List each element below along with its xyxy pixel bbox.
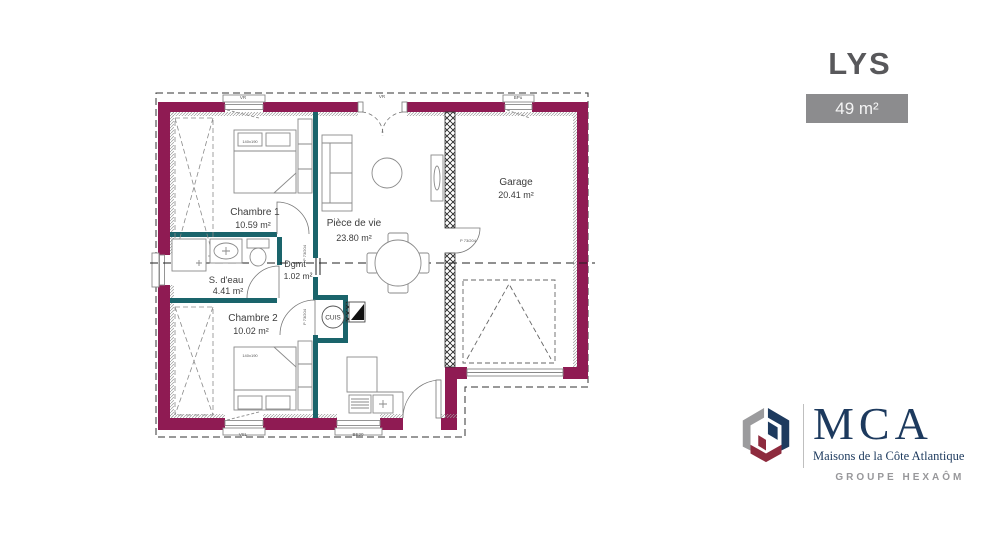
bed-tag-chambre2: 140x190 — [242, 353, 258, 358]
tv-unit-icon — [431, 155, 443, 201]
garage-separation-wall — [445, 112, 455, 367]
bed-tag-chambre1: 140x190 — [242, 139, 258, 144]
passage-marks — [316, 258, 320, 275]
floor-plan: CUIS Chambre 1 10.59 m² Pièce de vie 23.… — [150, 85, 600, 445]
wardrobe-chambre2-icon — [175, 307, 213, 415]
door-tag-chambre2: P 73/204 — [302, 308, 307, 325]
brand-tagline: Maisons de la Côte Atlantique — [813, 449, 964, 464]
water-heater-icon — [346, 302, 365, 322]
room-label-chambre1: Chambre 1 — [230, 207, 280, 218]
page-title: LYS — [795, 46, 925, 82]
room-area-sdeau: 4.41 m² — [213, 286, 244, 296]
door-tag-garage: P 73/204 — [460, 238, 477, 243]
window-tag-top-right: BPu — [514, 95, 523, 100]
entrance-door — [358, 102, 407, 136]
mca-cube-icon — [736, 404, 796, 470]
room-area-chambre2: 10.02 m² — [233, 326, 269, 336]
brand-initials: MCA — [813, 402, 964, 446]
window-tag-top-center: VR — [379, 94, 386, 99]
bathroom-fixtures — [172, 239, 269, 271]
room-label-piecedevie: Pièce de vie — [327, 218, 382, 229]
room-area-piecedevie: 23.80 m² — [336, 233, 372, 243]
dining-table-icon — [367, 233, 429, 293]
kitchen-icons — [347, 357, 403, 418]
room-label-chambre2: Chambre 2 — [228, 313, 278, 324]
kitchen-circle: CUIS — [322, 306, 344, 328]
brand-block: MCA Maisons de la Côte Atlantique GROUPE… — [736, 402, 992, 483]
sofa-icon — [322, 135, 352, 211]
page: LYS 49 m² — [0, 0, 1000, 554]
coffee-table-icon — [372, 158, 402, 188]
room-area-chambre1: 10.59 m² — [235, 220, 271, 230]
door-tag-bath: P 73/204 — [302, 244, 307, 261]
garage-door-symbol — [463, 280, 563, 376]
room-label-sdeau: S. d'eau — [209, 275, 244, 286]
brand-divider — [803, 404, 804, 468]
brand-group: GROUPE HEXAÔM — [813, 472, 964, 483]
area-badge: 49 m² — [806, 94, 908, 123]
window-tag-bottom-center: BE20 — [352, 432, 364, 437]
kitchen-circle-label: CUIS — [325, 315, 341, 322]
bed-chambre1-icon — [234, 119, 312, 193]
room-label-garage: Garage — [499, 177, 533, 188]
bed-chambre2-icon — [234, 341, 312, 410]
room-area-dgmt: 1.02 m² — [284, 271, 313, 281]
room-area-garage: 20.41 m² — [498, 190, 534, 200]
window-tag-bottom-left: VSL — [239, 432, 248, 437]
window-tag-top-left: VR — [240, 95, 247, 100]
